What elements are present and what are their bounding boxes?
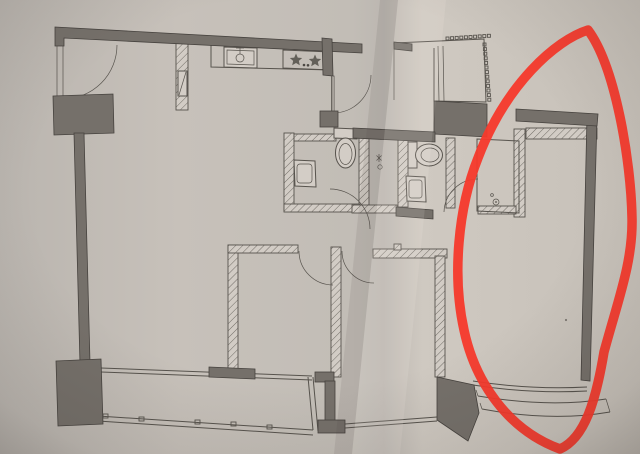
floor-plan-canvas xyxy=(0,0,640,454)
photo-of-floor-plan xyxy=(0,0,640,454)
photo-vignette xyxy=(0,0,640,454)
